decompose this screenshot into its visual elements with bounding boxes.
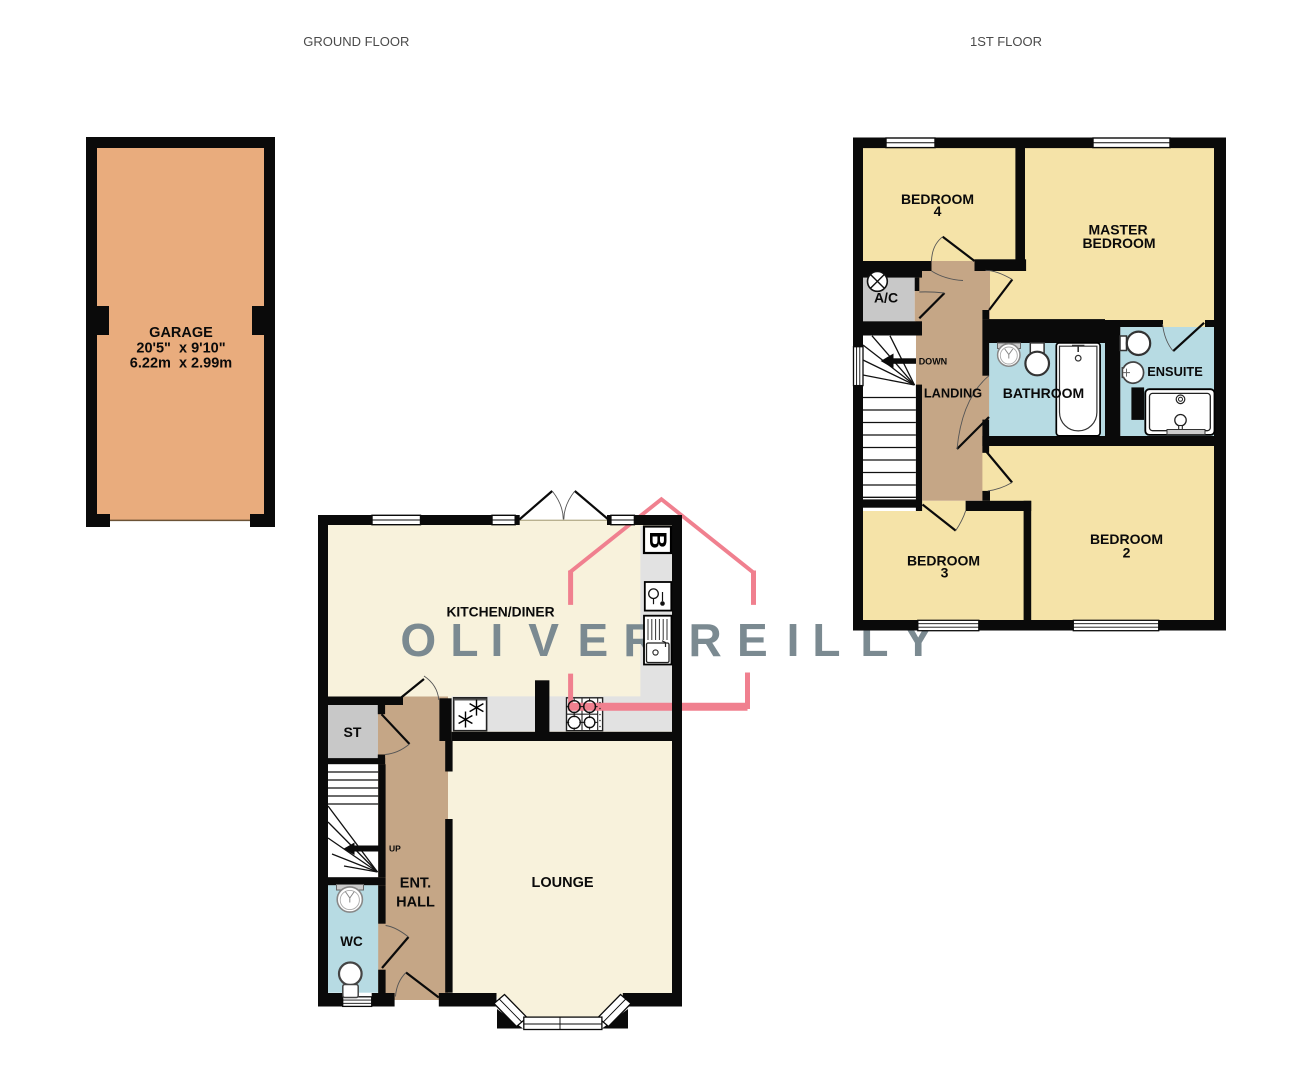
svg-text:E: E	[737, 614, 768, 666]
svg-text:I: I	[787, 614, 800, 666]
svg-text:ST: ST	[344, 724, 362, 740]
svg-text:O: O	[400, 614, 436, 666]
svg-text:BEDROOM: BEDROOM	[1082, 235, 1155, 251]
svg-text:GROUND FLOOR: GROUND FLOOR	[303, 34, 409, 49]
svg-text:UP: UP	[389, 844, 401, 854]
svg-text:KITCHEN/DINER: KITCHEN/DINER	[446, 605, 554, 620]
svg-text:2: 2	[1123, 545, 1131, 561]
svg-text:DOWN: DOWN	[919, 357, 948, 367]
svg-text:3: 3	[941, 565, 949, 581]
svg-text:1ST FLOOR: 1ST FLOOR	[970, 34, 1042, 49]
svg-text:B: B	[644, 531, 671, 548]
svg-text:LOUNGE: LOUNGE	[531, 875, 593, 891]
svg-text:R: R	[688, 614, 721, 666]
svg-text:ENT.: ENT.	[400, 876, 431, 892]
svg-text:E: E	[578, 614, 609, 666]
svg-text:HALL: HALL	[396, 895, 435, 911]
svg-text:6.22m x 2.99m: 6.22m x 2.99m	[130, 356, 232, 372]
svg-text:L: L	[812, 614, 840, 666]
svg-text:LANDING: LANDING	[924, 386, 982, 401]
svg-text:20'5" x 9'10": 20'5" x 9'10"	[136, 341, 225, 357]
svg-text:WC: WC	[340, 934, 363, 949]
svg-text:I: I	[491, 614, 504, 666]
svg-text:4: 4	[934, 203, 942, 219]
svg-text:L: L	[450, 614, 478, 666]
svg-text:V: V	[528, 614, 559, 666]
svg-text:ENSUITE: ENSUITE	[1147, 364, 1203, 379]
svg-text:GARAGE: GARAGE	[149, 325, 213, 341]
svg-text:BATHROOM: BATHROOM	[1003, 385, 1084, 401]
svg-text:A/C: A/C	[874, 290, 898, 306]
